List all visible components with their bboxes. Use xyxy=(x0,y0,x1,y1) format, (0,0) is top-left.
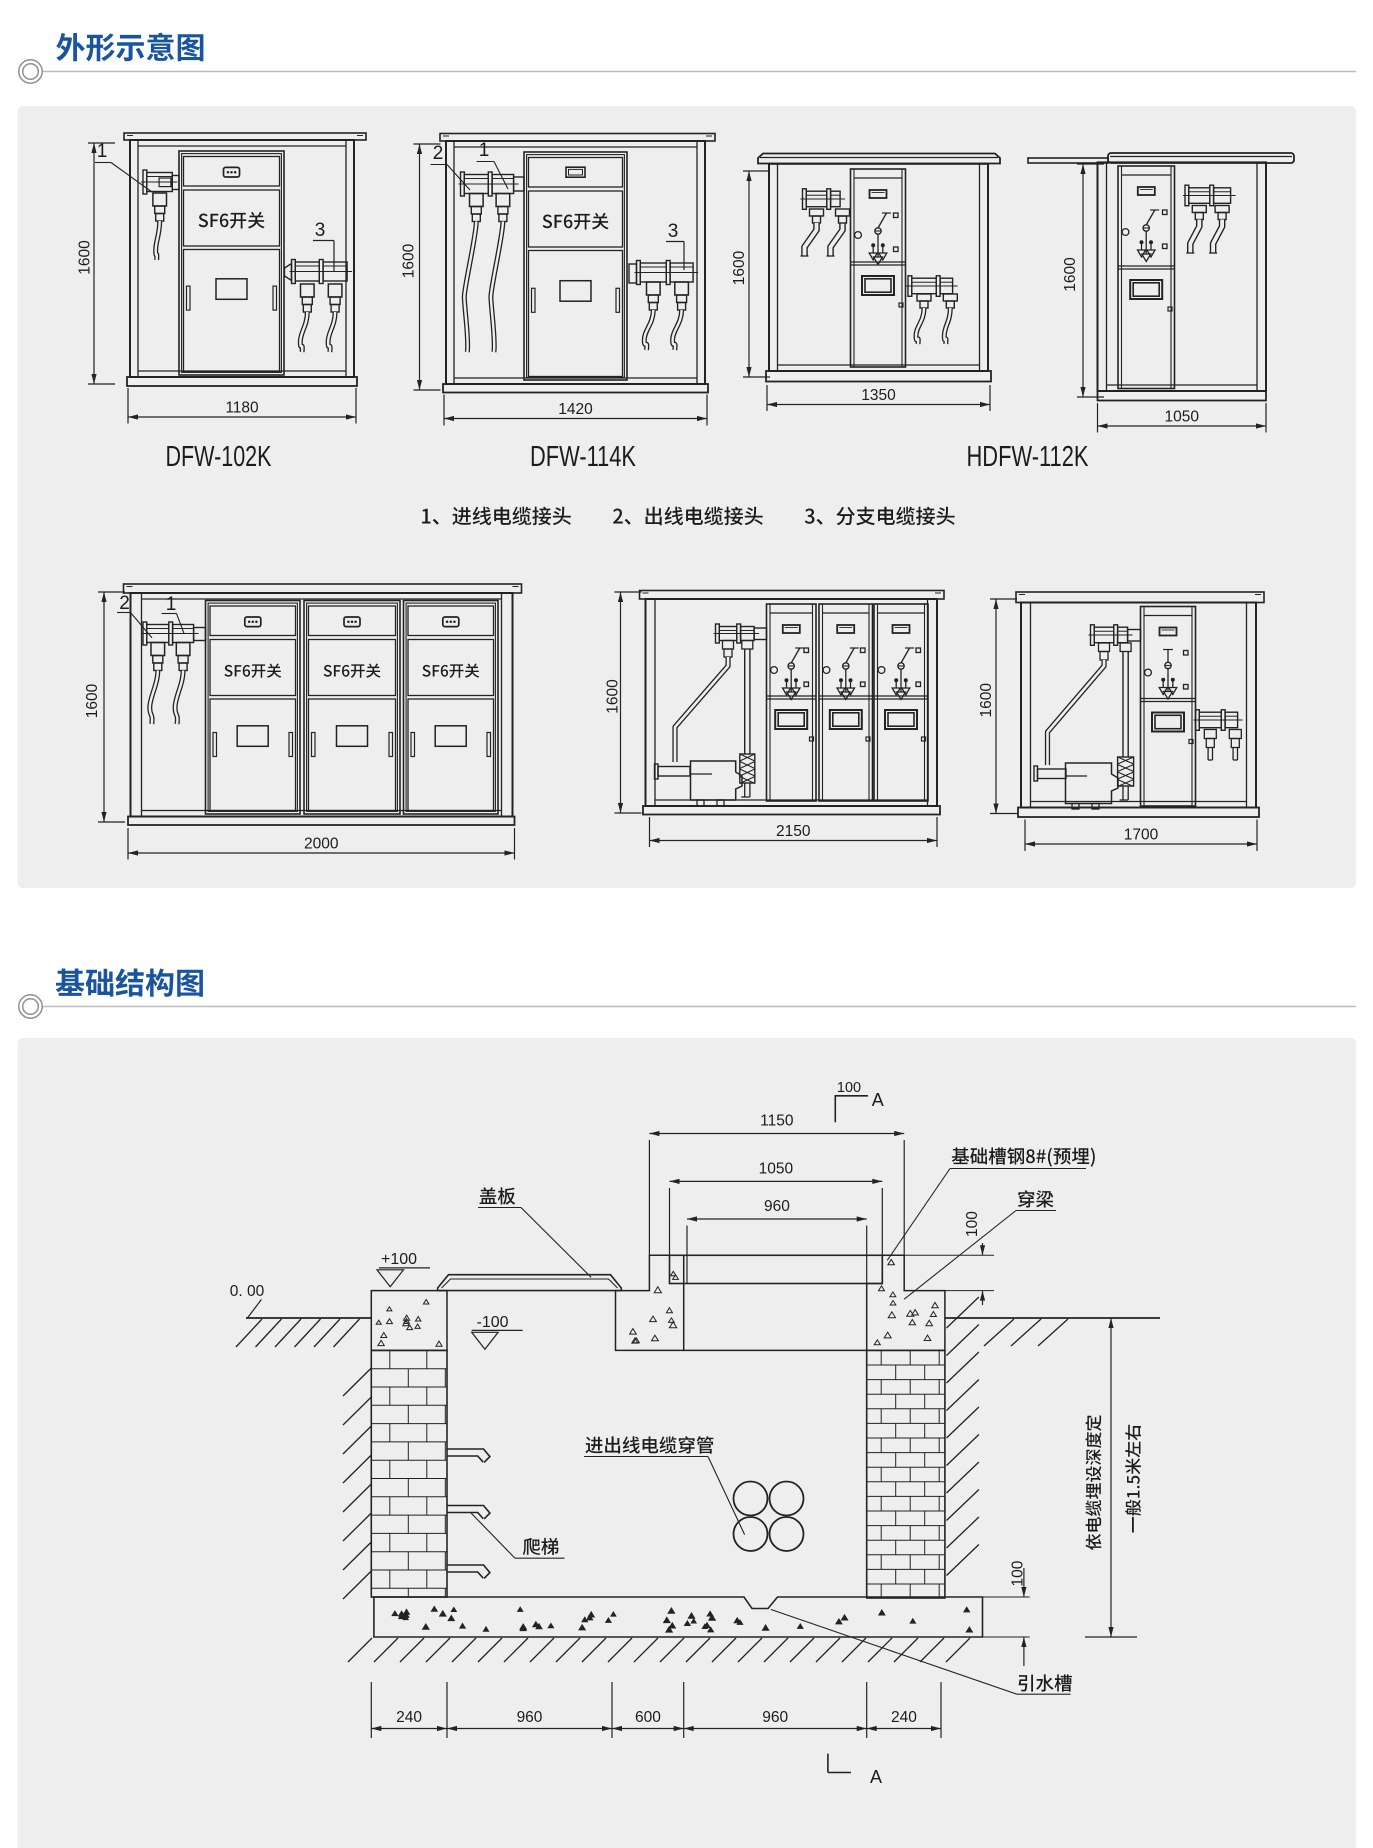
svg-text:2000: 2000 xyxy=(304,836,339,853)
svg-text:240: 240 xyxy=(396,1709,422,1726)
svg-text:960: 960 xyxy=(517,1709,543,1726)
svg-text:1050: 1050 xyxy=(759,1160,794,1177)
svg-text:0. 00: 0. 00 xyxy=(230,1283,265,1300)
svg-text:1: 1 xyxy=(479,140,490,161)
svg-text:1150: 1150 xyxy=(760,1113,794,1130)
svg-text:3: 3 xyxy=(668,221,679,242)
svg-text:2: 2 xyxy=(119,593,130,614)
svg-text:100: 100 xyxy=(964,1211,981,1237)
svg-text:1700: 1700 xyxy=(1124,827,1159,844)
svg-text:1600: 1600 xyxy=(76,240,93,275)
svg-text:1600: 1600 xyxy=(84,683,101,718)
svg-text:+100: +100 xyxy=(381,1251,417,1268)
svg-text:1050: 1050 xyxy=(1165,409,1200,426)
svg-text:1600: 1600 xyxy=(1062,257,1079,292)
svg-text:A: A xyxy=(870,1767,882,1787)
svg-text:600: 600 xyxy=(635,1709,661,1726)
svg-text:2: 2 xyxy=(433,143,444,164)
svg-text:1350: 1350 xyxy=(861,387,896,404)
svg-text:-100: -100 xyxy=(476,1314,508,1331)
svg-text:A: A xyxy=(872,1090,884,1110)
svg-text:1600: 1600 xyxy=(400,243,417,278)
svg-text:960: 960 xyxy=(764,1198,790,1215)
svg-text:1600: 1600 xyxy=(978,683,995,718)
svg-text:1420: 1420 xyxy=(558,401,593,418)
svg-text:HDFW-112K: HDFW-112K xyxy=(967,441,1089,473)
svg-text:100: 100 xyxy=(837,1080,861,1096)
svg-text:DFW-102K: DFW-102K xyxy=(166,441,272,473)
svg-text:1600: 1600 xyxy=(731,250,748,285)
svg-text:1: 1 xyxy=(166,594,177,615)
svg-text:3: 3 xyxy=(315,220,326,241)
svg-text:960: 960 xyxy=(762,1709,788,1726)
svg-text:240: 240 xyxy=(891,1709,917,1726)
svg-text:1: 1 xyxy=(97,141,108,162)
svg-text:DFW-114K: DFW-114K xyxy=(530,441,636,473)
svg-text:2150: 2150 xyxy=(776,823,811,840)
svg-text:1180: 1180 xyxy=(225,400,259,417)
svg-text:1600: 1600 xyxy=(604,679,621,714)
